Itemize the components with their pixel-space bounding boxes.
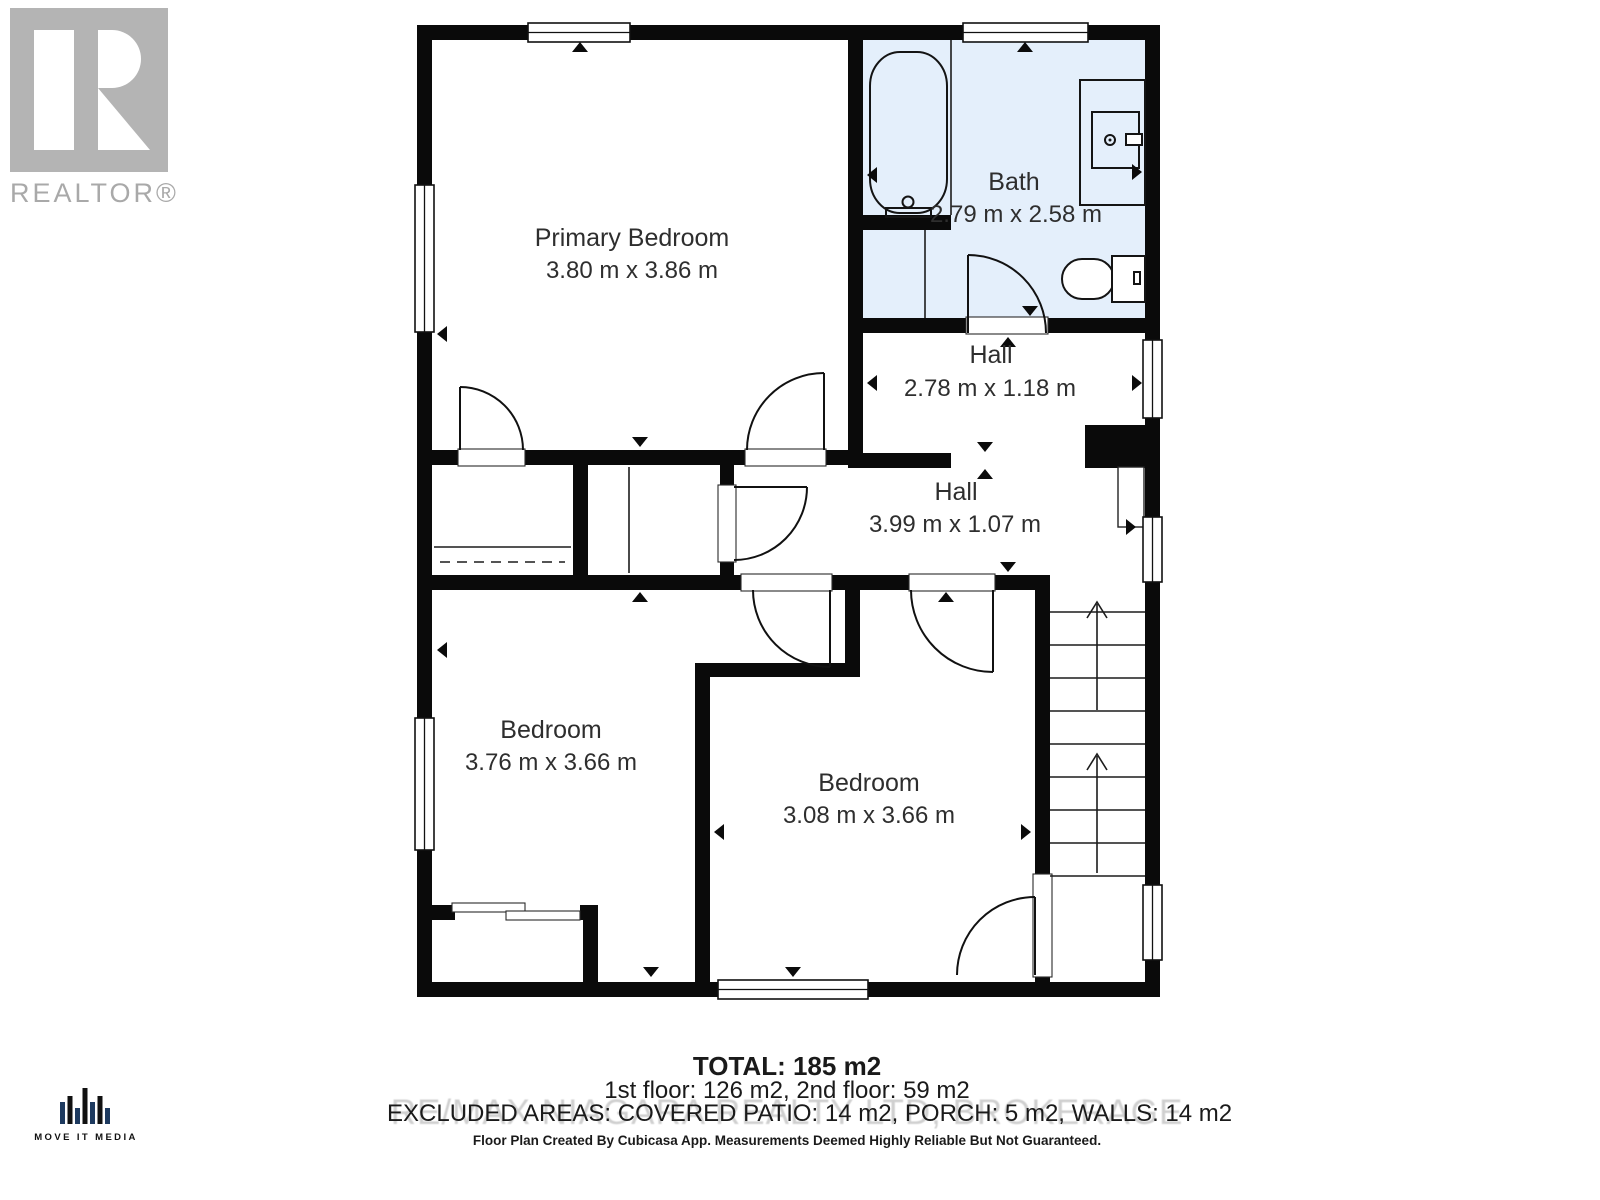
door [734,487,807,560]
door [460,387,523,450]
floor-plan-drawing: REALTOR® [0,0,1600,1200]
toilet [1062,256,1145,302]
room-label-hall-lower: Hall [934,478,977,506]
move-it-media-logo: MOVE IT MEDIA [34,1088,138,1143]
excluded-areas-text: EXCLUDED AREAS: COVERED PATIO: 14 m2, PO… [387,1100,1187,1128]
room-label-bedroom-left: Bedroom [500,716,601,744]
realtor-logo: REALTOR® [10,8,179,208]
window [718,980,868,999]
window [1143,885,1162,960]
disclaimer-text: Floor Plan Created By Cubicasa App. Meas… [387,1133,1187,1148]
window [963,23,1088,42]
room-dims-bedroom-right: 3.08 m x 3.66 m [783,802,955,829]
window [1143,340,1162,418]
door [911,590,993,672]
room-dims-bath: 2.79 m x 2.58 m [930,201,1102,228]
stairs-up-arrow [1087,602,1107,710]
room-dims-primary-bedroom: 3.80 m x 3.86 m [546,257,718,284]
room-dims-bedroom-left: 3.76 m x 3.66 m [465,749,637,776]
room-label-primary-bedroom: Primary Bedroom [535,224,730,252]
door [753,590,830,667]
door [957,897,1035,975]
stairs-up-arrow [1087,754,1107,873]
room-label-bath: Bath [988,168,1039,196]
window [415,185,434,332]
room-dims-hall-lower: 3.99 m x 1.07 m [869,511,1041,538]
door [747,373,824,450]
window [528,23,630,42]
closet-sliding-doors [452,903,580,920]
realtor-logo-text: REALTOR® [10,178,179,208]
window [415,718,434,850]
move-it-media-text: MOVE IT MEDIA [34,1132,138,1143]
stair-rail-box [1118,467,1144,527]
room-dims-hall-upper: 2.78 m x 1.18 m [904,375,1076,402]
room-label-bedroom-right: Bedroom [818,769,919,797]
floor-plan-page: REALTOR® [0,0,1600,1200]
window [1143,517,1162,582]
doors [460,255,1046,975]
staircase [1050,602,1145,876]
room-label-hall-upper: Hall [969,341,1012,369]
